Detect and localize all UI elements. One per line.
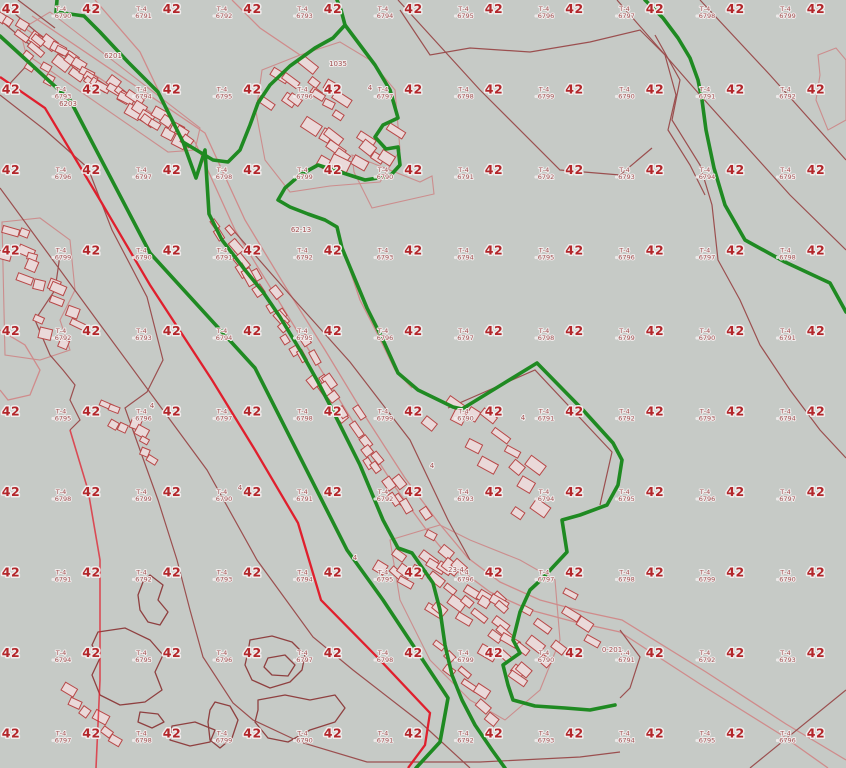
parcel-number-label: 6798 [296, 415, 313, 423]
grid-label-42: 42 [807, 243, 825, 258]
grid-label-42: 42 [243, 726, 261, 741]
parcel-number-label: 6791 [296, 495, 313, 503]
parcel-number-label: 6798 [216, 173, 233, 181]
grid-label-42: 42 [485, 726, 503, 741]
parcel-number-label: 6790 [618, 93, 635, 101]
grid-label-42: 42 [726, 645, 744, 660]
parcel-number-label: 6792 [618, 415, 635, 423]
grid-label-42: 42 [2, 1, 20, 16]
parcel-number-label: 6790 [538, 656, 555, 664]
parcel-number-label: 6796 [377, 334, 394, 342]
parcel-number-label: 6798 [699, 12, 716, 20]
parcel-number-label: 6791 [377, 737, 394, 745]
parcel-number-label: 6794 [135, 93, 152, 101]
grid-label-42: 42 [324, 565, 342, 580]
parcel-number-label: 6790 [699, 334, 716, 342]
grid-label-42: 42 [807, 484, 825, 499]
parcel-number-label: 6798 [618, 576, 635, 584]
parcel-number-label: 6797 [457, 334, 474, 342]
parcel-number-label: 6799 [216, 737, 233, 745]
parcel-number-label: 6792 [216, 12, 233, 20]
grid-label-42: 42 [82, 484, 100, 499]
parcel-number-label: 6799 [296, 173, 313, 181]
parcel-number-label: 6798 [135, 737, 152, 745]
grid-label-42: 42 [163, 484, 181, 499]
feature-label: 4 [368, 84, 373, 92]
grid-label-42: 42 [82, 1, 100, 16]
grid-label-42: 42 [404, 645, 422, 660]
grid-label-42: 42 [243, 243, 261, 258]
parcel-number-label: 6796 [618, 254, 635, 262]
parcel-number-label: 6799 [538, 93, 555, 101]
grid-label-42: 42 [163, 565, 181, 580]
grid-label-42: 42 [324, 243, 342, 258]
grid-label-42: 42 [485, 484, 503, 499]
grid-label-42: 42 [2, 726, 20, 741]
parcel-number-label: 6796 [538, 12, 555, 20]
grid-label-42: 42 [404, 565, 422, 580]
grid-label-42: 42 [163, 726, 181, 741]
parcel-number-label: 6790 [216, 495, 233, 503]
grid-label-42: 42 [2, 645, 20, 660]
parcel-number-label: 6792 [296, 254, 313, 262]
parcel-number-label: 6793 [216, 576, 233, 584]
grid-label-42: 42 [485, 323, 503, 338]
grid-label-42: 42 [726, 484, 744, 499]
grid-label-42: 42 [2, 162, 20, 177]
parcel-number-label: 6793 [377, 254, 394, 262]
grid-label-42: 42 [163, 82, 181, 97]
grid-label-42: 42 [726, 565, 744, 580]
grid-label-42: 42 [565, 1, 583, 16]
parcel-number-label: 6790 [296, 737, 313, 745]
grid-label-42: 42 [324, 1, 342, 16]
grid-label-42: 42 [82, 162, 100, 177]
grid-label-42: 42 [565, 243, 583, 258]
parcel-number-label: 6799 [618, 334, 635, 342]
grid-label-42: 42 [565, 162, 583, 177]
building [38, 327, 53, 340]
grid-label-42: 42 [485, 565, 503, 580]
parcel-number-label: 6791 [699, 93, 716, 101]
grid-label-42: 42 [485, 162, 503, 177]
parcel-number-label: 6795 [296, 334, 313, 342]
feature-label: 4 [521, 414, 526, 422]
grid-label-42: 42 [646, 645, 664, 660]
parcel-number-label: 6797 [135, 173, 152, 181]
grid-label-42: 42 [82, 404, 100, 419]
parcel-number-label: 6795 [779, 173, 796, 181]
parcel-number-label: 6795 [135, 656, 152, 664]
parcel-number-label: 6799 [779, 12, 796, 20]
grid-label-42: 42 [82, 323, 100, 338]
grid-label-42: 42 [646, 162, 664, 177]
grid-label-42: 42 [565, 323, 583, 338]
parcel-number-label: 6795 [699, 737, 716, 745]
feature-label: 1035 [329, 60, 347, 68]
feature-label: 6203 [59, 100, 77, 108]
feature-label: 4 [150, 402, 155, 410]
parcel-number-label: 6796 [216, 656, 233, 664]
parcel-number-label: 6794 [699, 173, 716, 181]
grid-label-42: 42 [404, 726, 422, 741]
grid-label-42: 42 [485, 243, 503, 258]
grid-label-42: 42 [324, 82, 342, 97]
parcel-number-label: 6794 [457, 254, 474, 262]
grid-label-42: 42 [807, 404, 825, 419]
grid-label-42: 42 [2, 82, 20, 97]
parcel-number-label: 6793 [699, 415, 716, 423]
grid-label-42: 42 [163, 645, 181, 660]
parcel-number-label: 6795 [457, 12, 474, 20]
grid-label-42: 42 [404, 323, 422, 338]
parcel-number-label: 6793 [296, 12, 313, 20]
parcel-number-label: 6799 [699, 576, 716, 584]
grid-label-42: 42 [485, 1, 503, 16]
parcel-number-label: 6793 [457, 495, 474, 503]
parcel-number-label: 6794 [618, 737, 635, 745]
grid-label-42: 42 [565, 726, 583, 741]
grid-label-42: 42 [726, 404, 744, 419]
grid-label-42: 42 [807, 645, 825, 660]
parcel-number-label: 6793 [618, 173, 635, 181]
feature-label: 4 [238, 484, 243, 492]
feature-label: 6201 [104, 52, 122, 60]
grid-label-42: 42 [807, 323, 825, 338]
grid-label-42: 42 [324, 323, 342, 338]
parcel-number-label: 6799 [55, 254, 72, 262]
grid-label-42: 42 [404, 404, 422, 419]
map-background [0, 0, 846, 768]
parcel-number-label: 6797 [296, 656, 313, 664]
grid-label-42: 42 [807, 565, 825, 580]
parcel-number-label: 6794 [538, 495, 555, 503]
parcel-number-label: 6793 [779, 656, 796, 664]
grid-label-42: 42 [485, 82, 503, 97]
parcel-number-label: 6797 [779, 495, 796, 503]
parcel-number-label: 6792 [779, 93, 796, 101]
grid-label-42: 42 [324, 404, 342, 419]
grid-label-42: 42 [726, 726, 744, 741]
feature-label: 4 [353, 554, 358, 562]
parcel-number-label: 6794 [377, 12, 394, 20]
building [33, 279, 46, 291]
parcel-number-label: 6795 [377, 576, 394, 584]
parcel-number-label: 6792 [538, 173, 555, 181]
parcel-number-label: 6791 [457, 173, 474, 181]
grid-label-42: 42 [807, 162, 825, 177]
grid-label-42: 42 [726, 243, 744, 258]
grid-label-42: 42 [243, 645, 261, 660]
parcel-number-label: 6791 [618, 656, 635, 664]
grid-label-42: 42 [646, 484, 664, 499]
grid-label-42: 42 [243, 404, 261, 419]
grid-label-42: 42 [243, 82, 261, 97]
grid-label-42: 42 [726, 82, 744, 97]
grid-label-42: 42 [82, 243, 100, 258]
grid-label-42: 42 [243, 323, 261, 338]
parcel-number-label: 6794 [296, 576, 313, 584]
grid-label-42: 42 [565, 404, 583, 419]
parcel-number-label: 6792 [55, 334, 72, 342]
grid-label-42: 42 [646, 404, 664, 419]
grid-label-42: 42 [82, 82, 100, 97]
grid-label-42: 42 [646, 82, 664, 97]
parcel-number-label: 6795 [538, 254, 555, 262]
parcel-number-label: 6792 [377, 495, 394, 503]
grid-label-42: 42 [404, 1, 422, 16]
grid-label-42: 42 [163, 162, 181, 177]
map-canvas[interactable]: 42Т-4679042Т-4679142Т-4679242Т-4679342Т-… [0, 0, 846, 768]
grid-label-42: 42 [646, 243, 664, 258]
grid-label-42: 42 [404, 162, 422, 177]
parcel-number-label: 6791 [135, 12, 152, 20]
parcel-number-label: 6797 [618, 12, 635, 20]
grid-label-42: 42 [646, 565, 664, 580]
grid-label-42: 42 [82, 565, 100, 580]
grid-label-42: 42 [726, 162, 744, 177]
grid-label-42: 42 [2, 484, 20, 499]
parcel-number-label: 6792 [699, 656, 716, 664]
grid-label-42: 42 [324, 726, 342, 741]
parcel-number-label: 6794 [55, 656, 72, 664]
parcel-number-label: 6790 [457, 415, 474, 423]
grid-label-42: 42 [807, 82, 825, 97]
parcel-number-label: 6796 [55, 173, 72, 181]
grid-label-42: 42 [243, 484, 261, 499]
grid-label-42: 42 [163, 243, 181, 258]
grid-label-42: 42 [324, 645, 342, 660]
grid-label-42: 42 [485, 645, 503, 660]
parcel-number-label: 6795 [216, 93, 233, 101]
grid-label-42: 42 [243, 162, 261, 177]
parcel-number-label: 6796 [779, 737, 796, 745]
parcel-number-label: 6798 [538, 334, 555, 342]
grid-label-42: 42 [404, 484, 422, 499]
grid-label-42: 42 [2, 565, 20, 580]
grid-label-42: 42 [565, 645, 583, 660]
grid-label-42: 42 [565, 484, 583, 499]
grid-label-42: 42 [565, 565, 583, 580]
grid-label-42: 42 [243, 1, 261, 16]
parcel-number-label: 6799 [377, 415, 394, 423]
feature-label: 0-201 [602, 646, 622, 654]
grid-label-42: 42 [646, 1, 664, 16]
parcel-number-label: 6791 [55, 576, 72, 584]
grid-label-42: 42 [565, 82, 583, 97]
grid-label-42: 42 [726, 323, 744, 338]
feature-label: 23-4 [448, 566, 464, 574]
parcel-number-label: 6797 [377, 93, 394, 101]
feature-label: 62-13 [291, 226, 311, 234]
grid-label-42: 42 [646, 726, 664, 741]
parcel-number-label: 6791 [216, 254, 233, 262]
parcel-number-label: 6793 [538, 737, 555, 745]
parcel-number-label: 6798 [457, 93, 474, 101]
grid-label-42: 42 [163, 323, 181, 338]
parcel-number-label: 6791 [779, 334, 796, 342]
parcel-number-label: 6791 [538, 415, 555, 423]
grid-label-42: 42 [82, 726, 100, 741]
grid-label-42: 42 [646, 323, 664, 338]
parcel-number-label: 6797 [699, 254, 716, 262]
parcel-number-label: 6797 [55, 737, 72, 745]
parcel-number-label: 6792 [135, 576, 152, 584]
grid-label-42: 42 [404, 243, 422, 258]
parcel-number-label: 6794 [779, 415, 796, 423]
parcel-number-label: 6790 [779, 576, 796, 584]
parcel-number-label: 6798 [377, 656, 394, 664]
grid-label-42: 42 [485, 404, 503, 419]
grid-label-42: 42 [404, 82, 422, 97]
grid-label-42: 42 [2, 243, 20, 258]
grid-label-42: 42 [807, 1, 825, 16]
parcel-number-label: 6790 [55, 12, 72, 20]
map-viewport[interactable]: 42Т-4679042Т-4679142Т-4679242Т-4679342Т-… [0, 0, 846, 768]
grid-label-42: 42 [2, 323, 20, 338]
grid-label-42: 42 [243, 565, 261, 580]
parcel-number-label: 6796 [699, 495, 716, 503]
grid-label-42: 42 [2, 404, 20, 419]
parcel-number-label: 6797 [216, 415, 233, 423]
parcel-number-label: 6799 [135, 495, 152, 503]
parcel-number-label: 6794 [216, 334, 233, 342]
feature-label: 4 [430, 462, 435, 470]
parcel-number-label: 6790 [377, 173, 394, 181]
parcel-number-label: 6798 [55, 495, 72, 503]
parcel-number-label: 6796 [135, 415, 152, 423]
parcel-number-label: 6790 [135, 254, 152, 262]
grid-label-42: 42 [324, 162, 342, 177]
parcel-number-label: 6796 [296, 93, 313, 101]
grid-label-42: 42 [163, 404, 181, 419]
grid-label-42: 42 [807, 726, 825, 741]
parcel-number-label: 6792 [457, 737, 474, 745]
parcel-number-label: 6797 [538, 576, 555, 584]
grid-label-42: 42 [324, 484, 342, 499]
grid-label-42: 42 [726, 1, 744, 16]
parcel-number-label: 6799 [457, 656, 474, 664]
parcel-number-label: 6795 [55, 415, 72, 423]
grid-label-42: 42 [163, 1, 181, 16]
parcel-number-label: 6796 [457, 576, 474, 584]
parcel-number-label: 6795 [618, 495, 635, 503]
grid-label-42: 42 [82, 645, 100, 660]
parcel-number-label: 6793 [135, 334, 152, 342]
parcel-number-label: 6798 [779, 254, 796, 262]
